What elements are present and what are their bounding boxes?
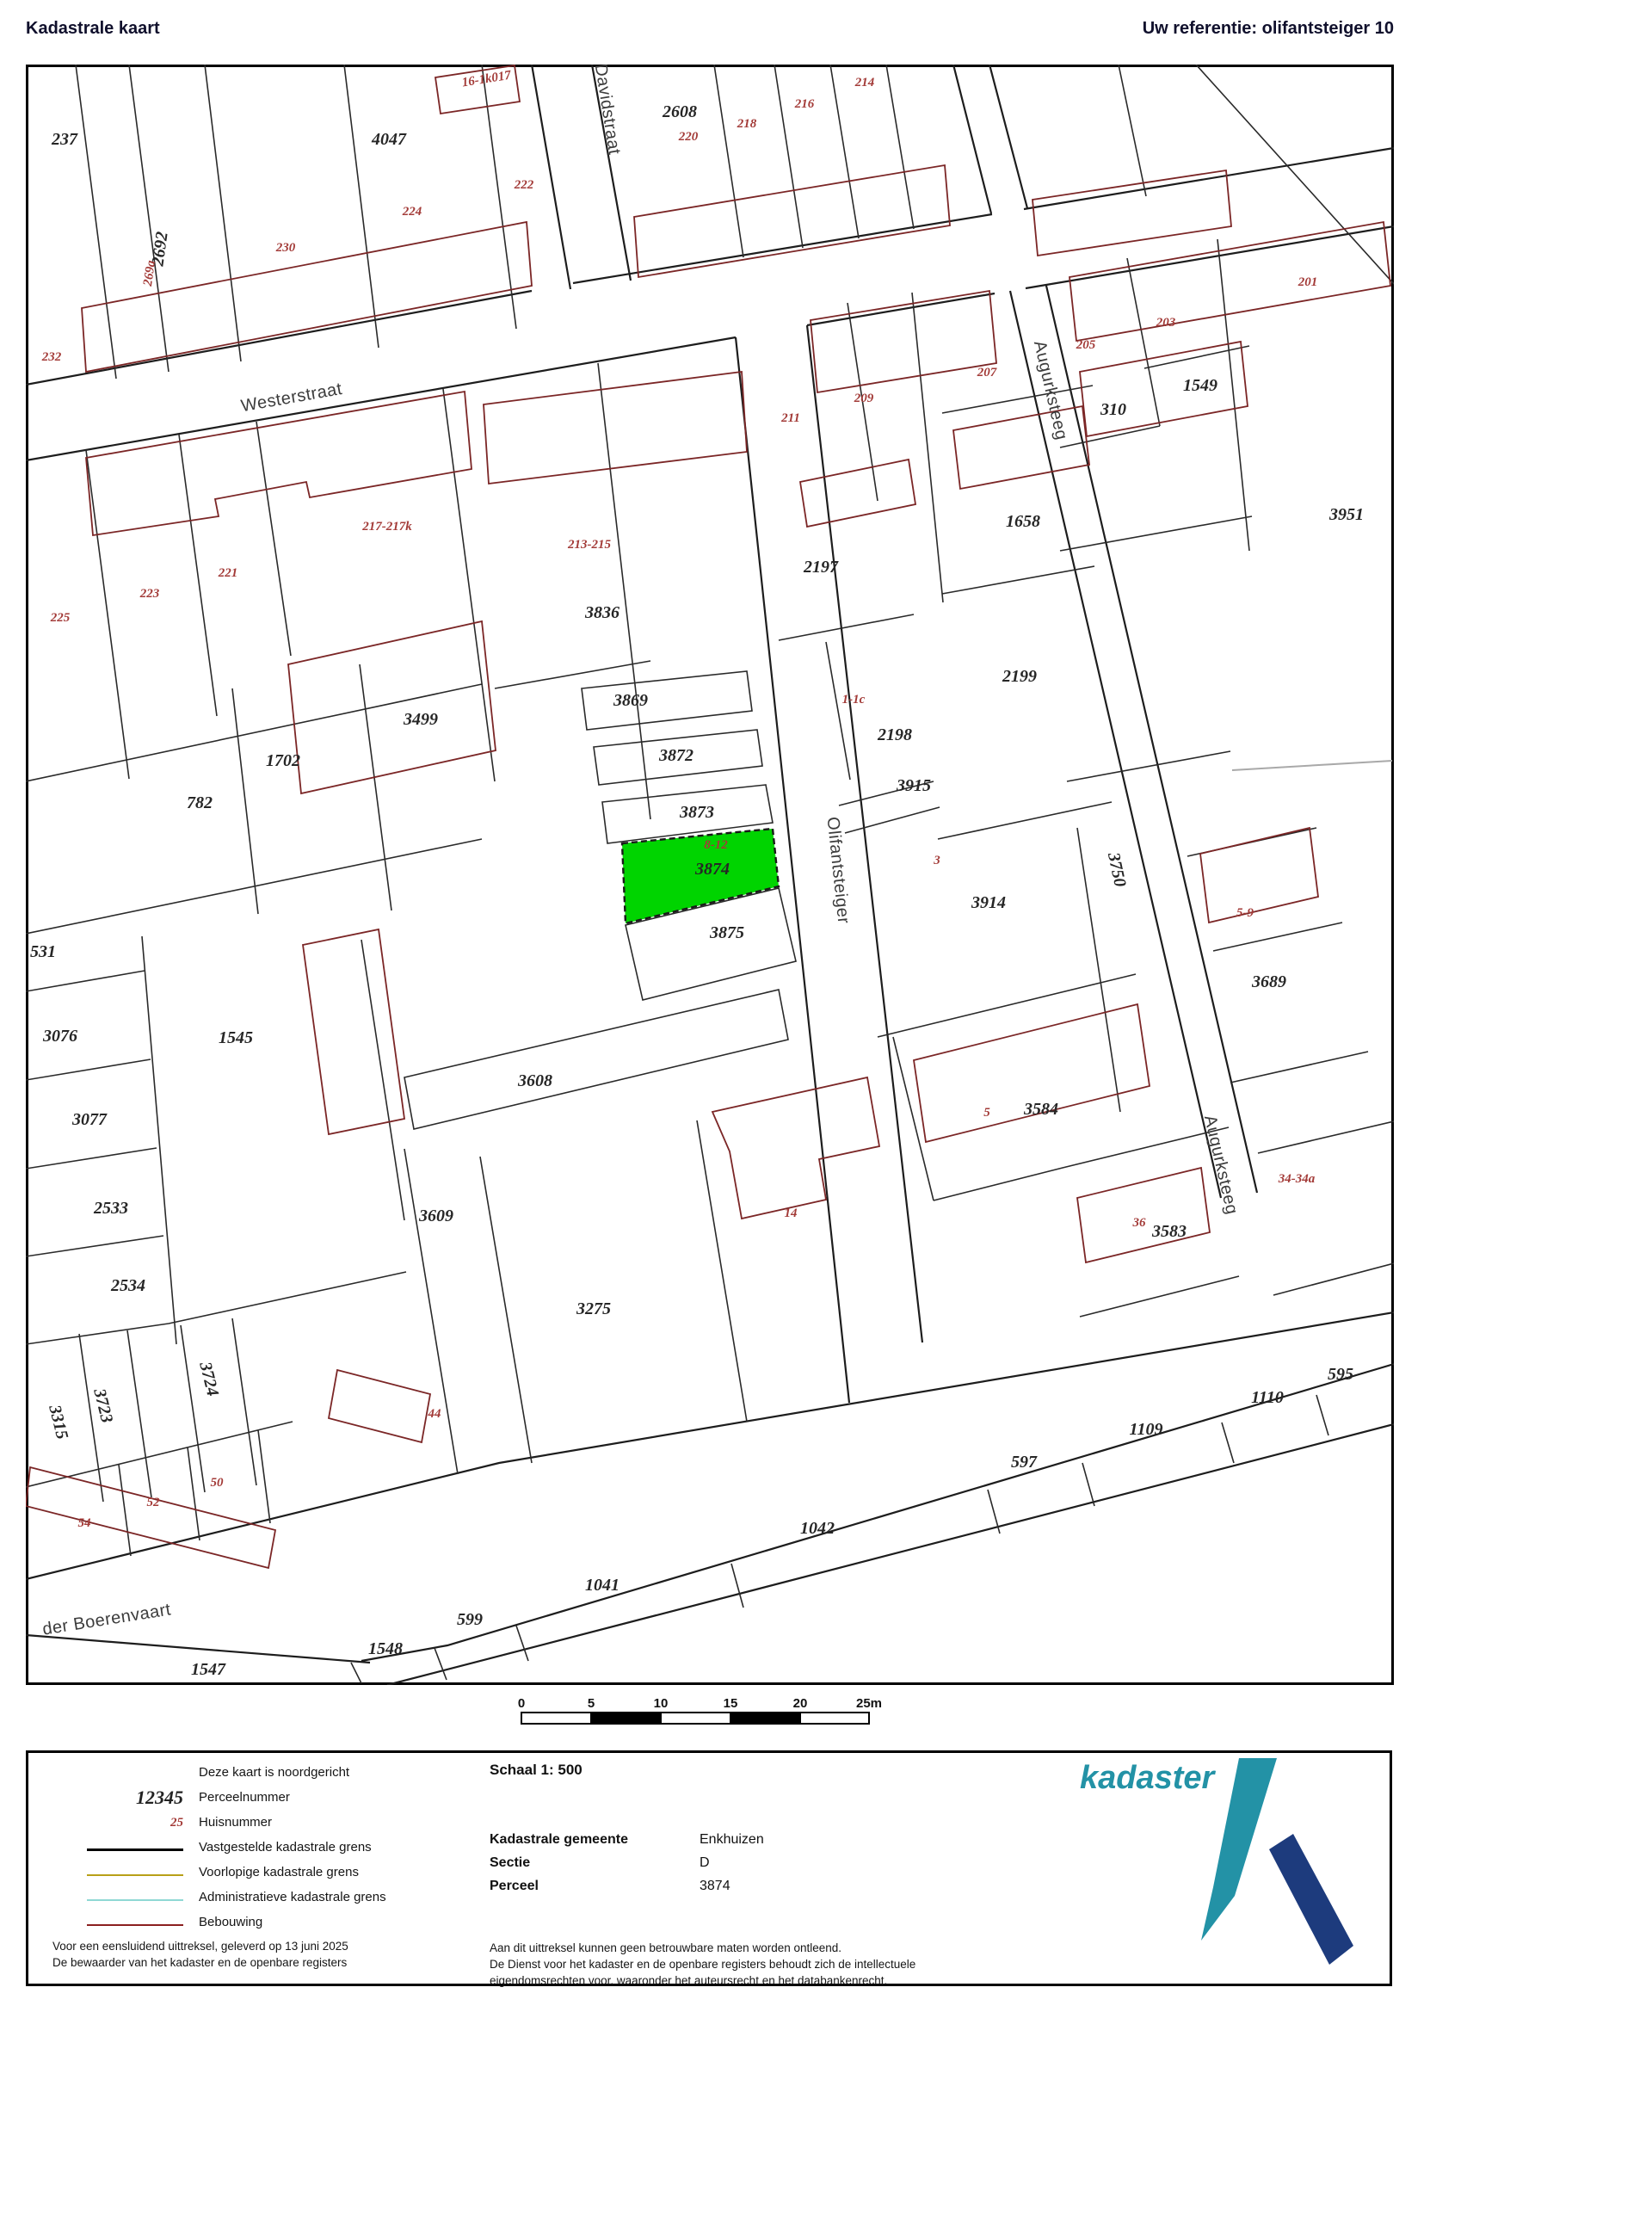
scalebar-tick-10: 10 xyxy=(654,1696,669,1711)
housenumber-label-218: 218 xyxy=(737,117,757,131)
parcel-label-2534: 2534 xyxy=(110,1276,145,1295)
legend-label: Deze kaart is noordgericht xyxy=(199,1765,349,1780)
parcel-label-1547: 1547 xyxy=(191,1660,226,1679)
parcel-label-1545: 1545 xyxy=(219,1028,253,1047)
parcel-label-3872: 3872 xyxy=(658,746,693,765)
scalebar-tick-0: 0 xyxy=(518,1696,525,1711)
footer-line-1: Voor een eensluidend uittreksel, gelever… xyxy=(52,1938,348,1955)
parcel-label-3873: 3873 xyxy=(679,803,714,822)
housenumber-label-14: 14 xyxy=(785,1207,798,1220)
parcel-label-3608: 3608 xyxy=(517,1071,552,1090)
parcel-label-3836: 3836 xyxy=(584,603,619,622)
legend-symbol: 12345 xyxy=(71,1787,199,1809)
scalebar-tick-15: 15 xyxy=(724,1696,738,1711)
housenumber-label-223: 223 xyxy=(139,587,160,601)
parcel-label-3951: 3951 xyxy=(1328,505,1364,524)
housenumber-label-54: 54 xyxy=(78,1516,92,1530)
kadastrale-kaart-page: Kadastrale kaart Uw referentie: olifants… xyxy=(0,0,1652,2228)
legend-item: Vastgestelde kadastrale grens xyxy=(71,1835,386,1860)
housenumber-label-1-1c: 1-1c xyxy=(842,693,866,707)
legend-items: Deze kaart is noordgericht12345Perceelnu… xyxy=(71,1760,386,1935)
legend-symbol xyxy=(71,1915,199,1930)
housenumber-label-213-215: 213-215 xyxy=(567,538,611,552)
disclaimer-line: Aan dit uittreksel kunnen geen betrouwba… xyxy=(490,1941,915,1957)
housenumber-label-5-9: 5-9 xyxy=(1236,906,1254,920)
housenumber-label-214: 214 xyxy=(854,76,875,89)
parcel-label-3689: 3689 xyxy=(1251,972,1286,991)
logo-mark-teal xyxy=(1201,1758,1277,1941)
legend-item: Administratieve kadastrale grens xyxy=(71,1885,386,1910)
housenumber-label-34-34a: 34-34a xyxy=(1278,1172,1316,1186)
parcel-label-2199: 2199 xyxy=(1002,667,1037,686)
page-title: Kadastrale kaart xyxy=(26,19,160,39)
legend-label: Vastgestelde kadastrale grens xyxy=(199,1840,372,1855)
housenumber-label-216: 216 xyxy=(794,97,815,111)
parcel-label-599: 599 xyxy=(457,1610,483,1629)
legend-symbol xyxy=(71,1865,199,1880)
legend-symbol xyxy=(71,1840,199,1855)
detail-rows: Kadastrale gemeenteEnkhuizenSectieDPerce… xyxy=(490,1832,764,1902)
parcel-details: Schaal 1: 500 Kadastrale gemeenteEnkhuiz… xyxy=(490,1762,1092,1779)
legend-item: Bebouwing xyxy=(71,1910,386,1935)
housenumber-label-52: 52 xyxy=(147,1496,161,1509)
kadaster-logo: kadaster xyxy=(1052,1753,1392,1984)
parcel-label-3499: 3499 xyxy=(403,710,438,729)
parcel-label-3874: 3874 xyxy=(694,860,730,879)
housenumber-label-207: 207 xyxy=(977,366,997,380)
legend-label: Voorlopige kadastrale grens xyxy=(199,1865,359,1879)
scalebar-svg: 0510152025m xyxy=(499,1694,895,1732)
scalebar-segments xyxy=(521,1713,869,1724)
scalebar-ticks: 0510152025m xyxy=(518,1696,882,1711)
housenumber-label-8-12: 8-12 xyxy=(704,838,728,852)
parcel-label-3076: 3076 xyxy=(42,1027,77,1046)
legend-box: Deze kaart is noordgericht12345Perceelnu… xyxy=(26,1750,1392,1986)
disclaimer: Aan dit uittreksel kunnen geen betrouwba… xyxy=(490,1941,915,1990)
kadaster-logo-mark xyxy=(1177,1753,1392,1984)
parcel-label-1549: 1549 xyxy=(1183,376,1217,395)
housenumber-label-225: 225 xyxy=(50,611,71,625)
parcel-label-3869: 3869 xyxy=(613,691,648,710)
parcel-label-597: 597 xyxy=(1011,1453,1038,1472)
parcel-label-1548: 1548 xyxy=(368,1639,403,1658)
housenumber-label-230: 230 xyxy=(275,241,296,255)
housenumber-label-217-217k: 217-217k xyxy=(361,520,412,534)
cadastral-map-svg: WesterstraatDavidstraatOlifantsteigerAug… xyxy=(26,65,1394,1685)
scalebar-tick-20: 20 xyxy=(793,1696,808,1711)
legend-symbol xyxy=(71,1890,199,1905)
detail-row: Kadastrale gemeenteEnkhuizen xyxy=(490,1832,764,1855)
parcel-label-2608: 2608 xyxy=(662,102,697,121)
housenumber-label-220: 220 xyxy=(678,130,699,144)
housenumber-label-205: 205 xyxy=(1076,338,1096,352)
detail-row: Perceel3874 xyxy=(490,1879,764,1902)
disclaimer-line: De Dienst voor het kadaster en de openba… xyxy=(490,1957,915,1973)
parcel-label-2533: 2533 xyxy=(93,1199,128,1218)
legend-label: Huisnummer xyxy=(199,1815,272,1830)
detail-row: SectieD xyxy=(490,1855,764,1879)
housenumber-label-201: 201 xyxy=(1298,275,1318,289)
legend-footer: Voor een eensluidend uittreksel, gelever… xyxy=(52,1938,348,1972)
footer-line-2: De bewaarder van het kadaster en de open… xyxy=(52,1954,348,1972)
parcel-label-4047: 4047 xyxy=(371,130,407,149)
housenumber-label-203: 203 xyxy=(1156,316,1176,330)
disclaimer-line: eigendomsrechten voor, waaronder het aut… xyxy=(490,1973,915,1990)
legend-item: 12345Perceelnummer xyxy=(71,1785,386,1810)
scalebar-tick-25m: 25m xyxy=(856,1696,882,1711)
parcel-label-1110: 1110 xyxy=(1251,1388,1284,1407)
parcel-label-2197: 2197 xyxy=(803,558,839,577)
legend-label: Administratieve kadastrale grens xyxy=(199,1890,386,1904)
legend-item: Voorlopige kadastrale grens xyxy=(71,1860,386,1885)
reference-text: Uw referentie: olifantsteiger 10 xyxy=(1143,19,1394,39)
parcel-label-3875: 3875 xyxy=(709,923,744,942)
housenumber-label-211: 211 xyxy=(780,411,800,425)
parcel-label-1702: 1702 xyxy=(266,751,300,770)
parcel-label-3584: 3584 xyxy=(1023,1100,1058,1119)
parcel-label-3609: 3609 xyxy=(418,1207,453,1225)
parcel-label-237: 237 xyxy=(51,130,78,149)
housenumber-label-224: 224 xyxy=(402,205,422,219)
parcel-label-310: 310 xyxy=(1100,400,1126,419)
parcel-label-3077: 3077 xyxy=(71,1110,108,1129)
legend-item: Deze kaart is noordgericht xyxy=(71,1760,386,1785)
housenumber-label-232: 232 xyxy=(41,350,62,364)
housenumber-label-5: 5 xyxy=(983,1106,990,1120)
parcel-label-782: 782 xyxy=(187,793,213,812)
housenumber-label-222: 222 xyxy=(514,178,534,192)
parcel-label-1042: 1042 xyxy=(800,1519,835,1538)
scalebar-tick-5: 5 xyxy=(588,1696,595,1711)
legend-label: Bebouwing xyxy=(199,1915,262,1929)
parcel-label-1658: 1658 xyxy=(1006,512,1040,531)
map-canvas: WesterstraatDavidstraatOlifantsteigerAug… xyxy=(26,65,1394,1685)
parcel-label-3914: 3914 xyxy=(971,893,1006,912)
housenumber-label-221: 221 xyxy=(218,566,238,580)
parcel-label-1109: 1109 xyxy=(1130,1420,1163,1439)
logo-mark-navy xyxy=(1269,1834,1353,1965)
parcel-label-3583: 3583 xyxy=(1151,1222,1187,1241)
legend-symbol: 25 xyxy=(71,1815,199,1830)
legend-item: 25Huisnummer xyxy=(71,1810,386,1835)
housenumber-label-44: 44 xyxy=(428,1407,442,1421)
housenumber-label-50: 50 xyxy=(211,1476,225,1490)
parcel-label-595: 595 xyxy=(1328,1365,1353,1384)
parcel-label-2198: 2198 xyxy=(877,725,912,744)
parcel-label-3915: 3915 xyxy=(896,776,931,795)
housenumber-label-209: 209 xyxy=(854,392,874,405)
scale-label: Schaal 1: 500 xyxy=(490,1762,1092,1779)
housenumber-label-3: 3 xyxy=(933,854,940,867)
housenumber-label-36: 36 xyxy=(1132,1216,1147,1230)
scalebar: 0510152025m xyxy=(499,1694,895,1732)
parcel-label-531: 531 xyxy=(30,942,56,961)
parcel-label-3275: 3275 xyxy=(576,1299,611,1318)
legend-label: Perceelnummer xyxy=(199,1790,290,1805)
parcel-label-1041: 1041 xyxy=(585,1576,619,1595)
